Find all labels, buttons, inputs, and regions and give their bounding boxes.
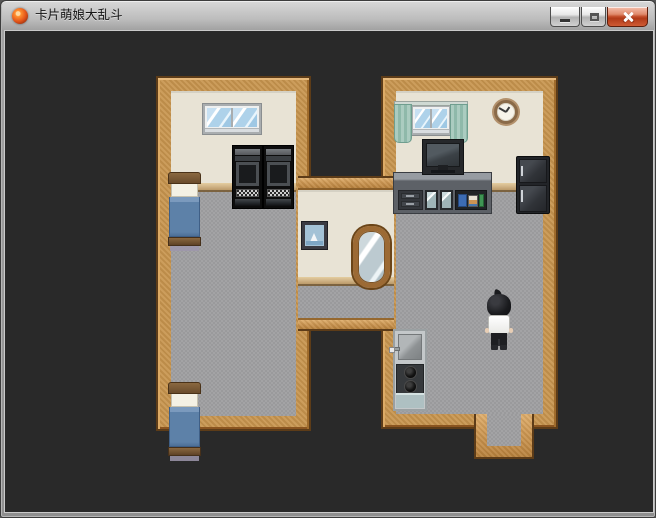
arcade-machine: [232, 145, 263, 209]
hallway-south-wall: [298, 318, 394, 331]
picture-water: [306, 241, 323, 245]
machine-grill: [236, 189, 259, 197]
close-button[interactable]: [607, 7, 648, 27]
book: [479, 194, 484, 207]
wall-clock: [494, 100, 518, 124]
character-shoe: [500, 345, 507, 350]
refrigerator: [516, 156, 550, 214]
game-window: 卡片萌娘大乱斗: [0, 0, 656, 518]
machine-top-band: [235, 149, 260, 155]
window-pane: [432, 109, 447, 128]
bed-headboard: [168, 382, 201, 394]
south-doorway: [474, 414, 534, 459]
hallway-north-wall: [298, 176, 394, 190]
window-pane: [233, 108, 257, 127]
tv-screen: [426, 143, 460, 167]
window-title: 卡片萌娘大乱斗: [35, 1, 123, 31]
bed-blanket: [169, 197, 200, 237]
tv-cabinet: [393, 172, 492, 214]
window-pane: [207, 108, 231, 127]
stove-burner: [404, 380, 417, 393]
curtain-left: [394, 104, 412, 143]
machine-band: [266, 156, 291, 161]
bed-shadow: [170, 246, 199, 251]
window-controls: [550, 7, 648, 27]
clock-minute-hand: [499, 107, 507, 113]
machine-top-band: [266, 149, 291, 155]
bed-blanket: [169, 407, 200, 447]
glass-door: [440, 190, 453, 210]
bed-pillow: [171, 394, 198, 407]
bed-shadow: [170, 456, 199, 461]
kitchen-unit: [393, 329, 427, 411]
bed-pillow: [171, 184, 198, 197]
window-sill: [205, 128, 259, 132]
window-sill: [413, 129, 449, 133]
standing-mirror: [353, 226, 390, 288]
title-bar[interactable]: 卡片萌娘大乱斗: [1, 1, 655, 31]
book: [458, 194, 467, 207]
fridge-handle: [521, 166, 523, 176]
sink: [398, 334, 422, 360]
glass-door: [425, 190, 438, 210]
hallway-floor: [298, 286, 394, 318]
bed-footboard: [168, 447, 201, 456]
arcade-machine: [263, 145, 294, 209]
doorway-floor: [487, 414, 521, 446]
maximize-icon: [590, 13, 599, 21]
machine-base: [235, 199, 260, 206]
minimize-icon: [560, 19, 570, 22]
bed-footboard: [168, 237, 201, 246]
tv-base: [431, 170, 455, 173]
bed-lower: [168, 382, 201, 461]
stove: [396, 364, 424, 395]
living-window-panes: [415, 109, 447, 128]
bed-headboard: [168, 172, 201, 184]
curtained-window: [394, 101, 468, 143]
minimize-button[interactable]: [550, 7, 580, 27]
arcade-machines: [232, 145, 294, 209]
machine-screen: [267, 162, 290, 186]
character-shirt: [488, 315, 510, 334]
freezer-door: [519, 159, 547, 183]
fridge-handle: [521, 190, 523, 202]
cabinet-drawers: [398, 190, 423, 210]
character-shoe: [491, 345, 498, 350]
character-hand: [485, 328, 489, 333]
player-character: [485, 294, 513, 356]
bedroom-window: [203, 104, 261, 134]
left-bedroom-interior: [171, 91, 296, 416]
maximize-button[interactable]: [581, 7, 606, 27]
sailboat-picture: [302, 222, 327, 249]
fridge-door: [519, 185, 547, 212]
book-shelf: [455, 190, 487, 210]
app-icon[interactable]: [12, 8, 28, 24]
faucet: [391, 347, 400, 351]
game-viewport[interactable]: [5, 31, 653, 512]
character-hair: [487, 294, 511, 317]
cabinet-front: [398, 190, 487, 210]
curtain-right: [450, 104, 468, 143]
television: [422, 139, 464, 175]
bed-upper: [168, 172, 201, 251]
book-stack: [468, 195, 478, 207]
bedroom-window-panes: [207, 108, 257, 127]
character-hand: [509, 328, 513, 333]
window-pane: [415, 109, 430, 128]
machine-screen: [236, 162, 259, 186]
close-icon: [622, 11, 634, 23]
machine-base: [266, 199, 291, 206]
stove-burner: [404, 366, 417, 379]
kitchen-cabinet: [396, 393, 424, 408]
drawer: [401, 193, 420, 199]
machine-grill: [267, 189, 290, 197]
drawer: [401, 201, 420, 207]
living-window: [411, 105, 451, 135]
machine-band: [235, 156, 260, 161]
